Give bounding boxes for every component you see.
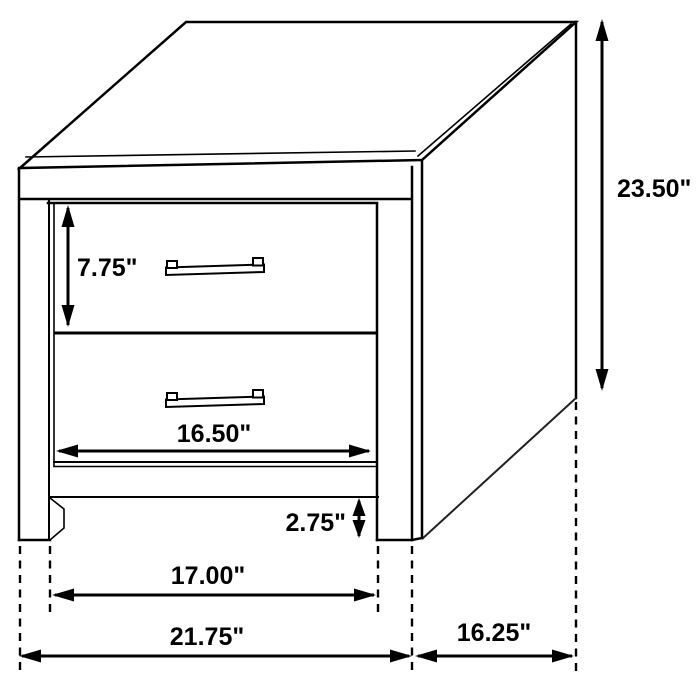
arrow-right-icon	[390, 650, 412, 663]
handle-left-post	[167, 393, 177, 400]
arrow-right-icon	[349, 445, 371, 458]
handle-right-post	[253, 258, 263, 266]
dim-label-depth: 16.25"	[457, 619, 531, 647]
top-front-edge-inner-line	[26, 151, 415, 157]
handle-left-post	[167, 261, 177, 268]
arrow-left-icon	[52, 589, 74, 602]
top-surface-outline	[20, 22, 576, 168]
dim-label-drawer-height: 7.75"	[77, 254, 138, 282]
diagram-canvas: 7.75" 23.50" 16.50" 2.75" 17	[0, 0, 700, 700]
handle-right-post	[253, 390, 263, 398]
dim-leg-span: 17.00"	[52, 562, 376, 602]
dim-drawer-height: 7.75"	[62, 205, 138, 327]
arrow-up-icon	[596, 19, 609, 41]
arrow-left-icon	[19, 650, 41, 663]
bottom-drawer-handle-icon	[166, 390, 264, 407]
left-leg-inner-face	[50, 498, 64, 540]
handle-bar	[166, 397, 264, 408]
arrow-left-icon	[56, 445, 78, 458]
dim-label-floor-clearance: 2.75"	[285, 509, 346, 537]
dim-label-drawer-width: 16.50"	[177, 420, 251, 448]
dim-depth: 16.25"	[415, 619, 574, 663]
drawer-front-lines	[48, 203, 378, 497]
nightstand-top-surface	[20, 22, 576, 168]
dim-floor-clearance: 2.75"	[285, 498, 365, 538]
nightstand-dimension-diagram: 7.75" 23.50" 16.50" 2.75" 17	[0, 0, 700, 700]
arrow-down-icon	[353, 520, 366, 538]
legs	[19, 498, 422, 540]
arrow-down-icon	[596, 369, 609, 391]
dim-label-overall-height: 23.50"	[617, 175, 691, 203]
arrow-right-icon	[354, 589, 376, 602]
top-drawer-handle-icon	[166, 258, 264, 275]
arrow-right-icon	[552, 650, 574, 663]
dim-drawer-width: 16.50"	[56, 420, 371, 458]
dim-overall-height: 23.50"	[596, 19, 692, 391]
dim-overall-width: 21.75"	[19, 623, 412, 663]
arrow-up-icon	[353, 498, 366, 516]
top-right-edge-inner-line	[418, 24, 571, 156]
right-leg-bottom	[377, 538, 422, 540]
arrow-down-icon	[62, 305, 75, 327]
dim-label-overall-width: 21.75"	[170, 623, 244, 651]
dim-label-leg-span: 17.00"	[171, 562, 245, 590]
side-panel-bottom-edge	[422, 398, 576, 539]
arrow-up-icon	[62, 205, 75, 227]
arrow-left-icon	[415, 650, 437, 663]
handle-bar	[166, 265, 264, 276]
